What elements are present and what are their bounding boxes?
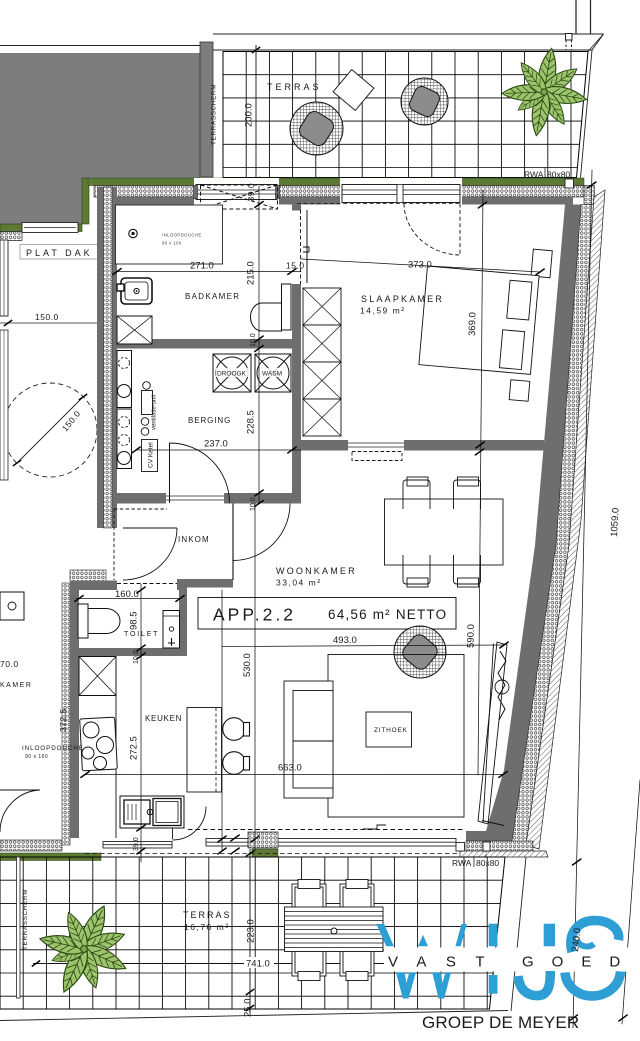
svg-text:39.0: 39.0 bbox=[133, 837, 140, 851]
svg-text:70.0: 70.0 bbox=[0, 659, 19, 669]
svg-text:215.0: 215.0 bbox=[246, 261, 257, 285]
svg-text:372.5: 372.5 bbox=[58, 708, 68, 732]
svg-text:BERGING: BERGING bbox=[188, 416, 231, 425]
svg-text:237.0: 237.0 bbox=[204, 439, 228, 450]
svg-text:DROOGK: DROOGK bbox=[217, 371, 247, 378]
svg-text:15.0: 15.0 bbox=[286, 261, 305, 271]
svg-text:INLOOPDOUCHE: INLOOPDOUCHE bbox=[22, 745, 84, 752]
svg-text:200.0: 200.0 bbox=[244, 103, 255, 127]
svg-text:530.0: 530.0 bbox=[242, 653, 253, 677]
svg-text:80x80: 80x80 bbox=[547, 170, 570, 180]
svg-text:RWA: RWA bbox=[452, 858, 472, 868]
svg-text:272.5: 272.5 bbox=[129, 736, 140, 760]
svg-text:663.0: 663.0 bbox=[278, 763, 302, 774]
svg-text:KEUKEN: KEUKEN bbox=[145, 714, 182, 723]
svg-text:90 x 160: 90 x 160 bbox=[25, 754, 48, 760]
svg-text:APP.2.2: APP.2.2 bbox=[213, 605, 296, 625]
svg-text:39.0: 39.0 bbox=[246, 183, 256, 202]
svg-text:INLOOPDOUCHE: INLOOPDOUCHE bbox=[162, 233, 202, 238]
svg-text:WASM: WASM bbox=[262, 371, 282, 378]
svg-text:GROEP DE MEYER: GROEP DE MEYER bbox=[422, 1013, 579, 1032]
svg-text:TERRAS: TERRAS bbox=[267, 82, 322, 92]
svg-text:369.0: 369.0 bbox=[467, 312, 478, 336]
svg-text:PLAT DAK: PLAT DAK bbox=[26, 248, 93, 258]
svg-text:INKOM: INKOM bbox=[178, 535, 210, 544]
svg-text:16,76 m²: 16,76 m² bbox=[184, 922, 230, 932]
svg-text:TOILET: TOILET bbox=[124, 631, 159, 638]
svg-text:TERRASSCHERM: TERRASSCHERM bbox=[22, 889, 29, 950]
svg-text:90 x 160: 90 x 160 bbox=[162, 241, 182, 246]
svg-text:160.0: 160.0 bbox=[115, 589, 139, 600]
svg-text:WOONKAMER: WOONKAMER bbox=[276, 566, 357, 576]
svg-text:BADKAMER: BADKAMER bbox=[185, 292, 240, 301]
svg-text:TERRASSCHERM: TERRASSCHERM bbox=[211, 84, 218, 145]
svg-text:98.5: 98.5 bbox=[129, 612, 140, 631]
svg-text:GOED: GOED bbox=[522, 954, 638, 971]
svg-text:228.5: 228.5 bbox=[246, 410, 257, 434]
svg-text:150.0: 150.0 bbox=[35, 312, 59, 322]
svg-text:373.0: 373.0 bbox=[408, 260, 432, 271]
svg-text:14,59 m²: 14,59 m² bbox=[360, 306, 406, 316]
svg-text:590.0: 590.0 bbox=[466, 624, 477, 648]
svg-text:10.0: 10.0 bbox=[250, 333, 257, 347]
svg-text:RWA: RWA bbox=[524, 170, 544, 180]
svg-text:CV Ketel: CV Ketel bbox=[148, 442, 155, 468]
svg-text:64,56 m² NETTO: 64,56 m² NETTO bbox=[328, 607, 447, 622]
svg-text:493.0: 493.0 bbox=[333, 635, 357, 646]
svg-text:10.0: 10.0 bbox=[250, 497, 257, 511]
svg-text:KAMER: KAMER bbox=[0, 682, 32, 689]
svg-text:ZITHOEK: ZITHOEK bbox=[374, 727, 408, 734]
svg-text:33,04 m²: 33,04 m² bbox=[276, 578, 322, 588]
svg-text:1059.0: 1059.0 bbox=[609, 508, 622, 538]
svg-text:10.0: 10.0 bbox=[133, 650, 140, 664]
svg-text:271.0: 271.0 bbox=[190, 261, 214, 272]
svg-text:741.0: 741.0 bbox=[246, 959, 270, 970]
svg-text:ventilatie-unit: ventilatie-unit bbox=[152, 394, 158, 430]
svg-text:223.0: 223.0 bbox=[246, 919, 257, 943]
svg-text:TERRAS: TERRAS bbox=[183, 910, 232, 920]
svg-text:SLAAPKAMER: SLAAPKAMER bbox=[361, 294, 444, 304]
svg-text:25.0: 25.0 bbox=[243, 999, 254, 1018]
svg-text:VAST: VAST bbox=[388, 954, 504, 971]
svg-text:80x80: 80x80 bbox=[476, 858, 499, 868]
